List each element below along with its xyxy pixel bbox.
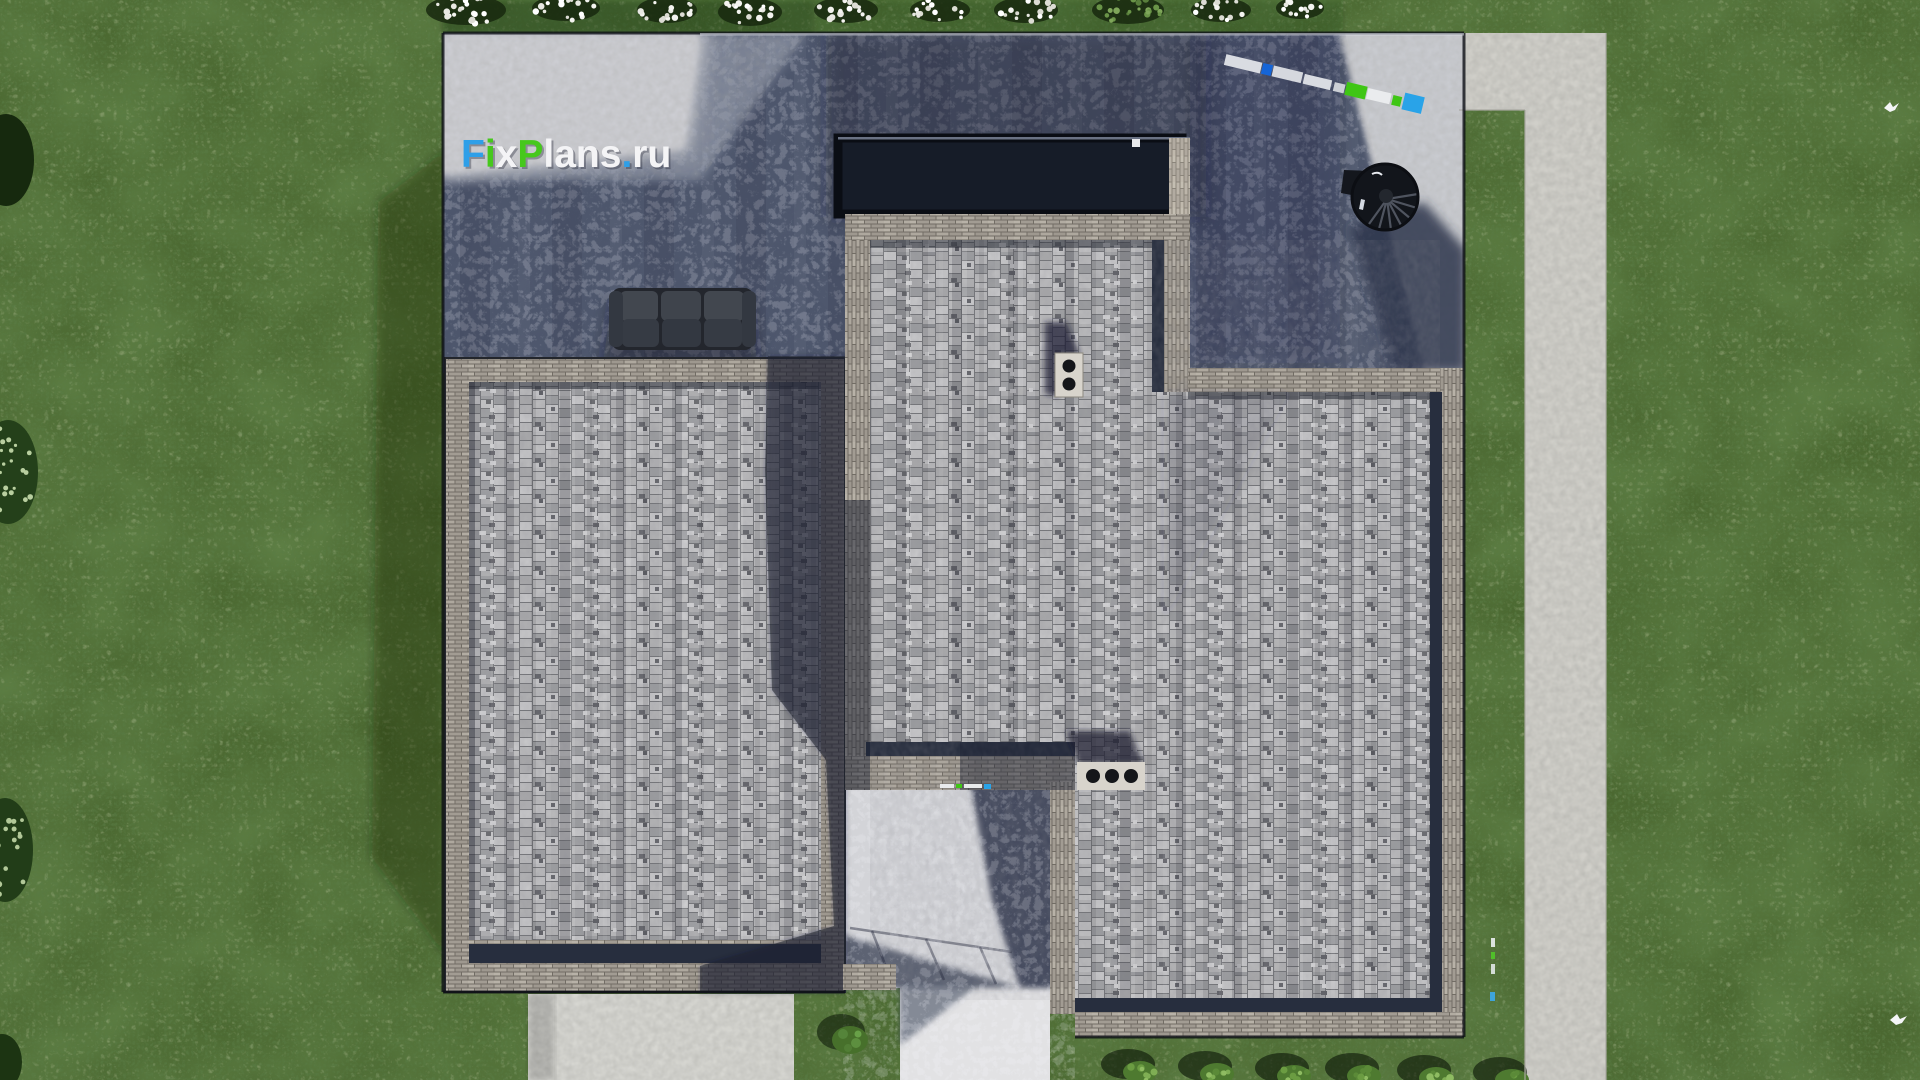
svg-text:FixPlans.ru: FixPlans.ru	[461, 133, 671, 176]
